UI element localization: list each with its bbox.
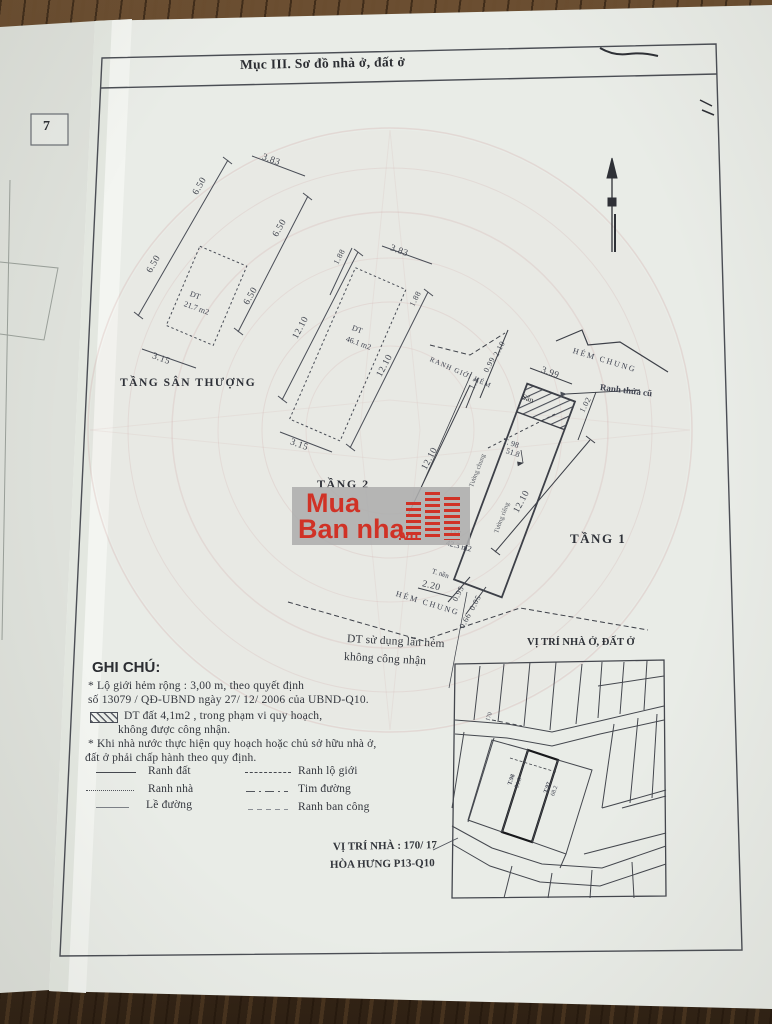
notes-title: GHI CHÚ: bbox=[92, 660, 160, 675]
scanned-page: 7 Mục III. Sơ đồ nhà ở, đất ở 3.83 6.50 … bbox=[0, 0, 772, 1024]
watermark-text-1: Mua bbox=[306, 490, 360, 517]
legend-label-ranh-ban-cong: Ranh ban công bbox=[298, 802, 370, 814]
note-line-6: đất ở phải chấp hành theo quy định. bbox=[85, 753, 257, 765]
legend-solid-line bbox=[96, 772, 136, 773]
legend-label-le-duong: Lề đường bbox=[146, 800, 192, 812]
legend-dotted-line bbox=[86, 790, 134, 791]
address-line-1: VỊ TRÍ NHÀ : 170/ 17 bbox=[333, 840, 437, 853]
roof-name: TẦNG SÂN THƯỢNG bbox=[120, 378, 256, 390]
photo-of-document: { "header": { "title": "Mục III. Sơ đồ n… bbox=[0, 0, 772, 1024]
floor1-name: TẦNG 1 bbox=[570, 532, 626, 545]
legend-thin-line bbox=[96, 807, 129, 808]
note-line-4: không được công nhận. bbox=[118, 725, 230, 737]
legend-label-ranh-lo-gioi: Ranh lộ giới bbox=[298, 766, 358, 778]
note-line-2: số 13079 / QĐ-UBND ngày 27/ 12/ 2006 của… bbox=[88, 695, 369, 707]
watermark-text-2: Ban nha bbox=[298, 516, 405, 543]
legend-balcony-line bbox=[248, 809, 288, 810]
legend-dashdot-line bbox=[246, 791, 288, 792]
address-line-2: HÒA HƯNG P13-Q10 bbox=[330, 858, 435, 871]
note-line-5: * Khi nhà nước thực hiện quy hoạch hoặc … bbox=[88, 739, 377, 751]
hatch-legend-swatch bbox=[90, 712, 118, 723]
page-title: Mục III. Sơ đồ nhà ở, đất ở bbox=[240, 55, 405, 71]
legend-label-ranh-nha: Ranh nhà bbox=[148, 784, 193, 796]
note-line-1: * Lộ giới hẻm rộng : 3,00 m, theo quyết … bbox=[88, 681, 304, 693]
legend-label-tim-duong: Tim đường bbox=[298, 784, 351, 796]
legend-label-ranh-dat: Ranh đất bbox=[148, 766, 191, 778]
page-tab-number: 7 bbox=[43, 120, 50, 134]
legend-dashed-line bbox=[245, 772, 291, 773]
map-title: VỊ TRÍ NHÀ Ở, ĐẤT Ở bbox=[527, 638, 635, 649]
note-line-3: DT đất 4,1m2 , trong phạm vi quy hoạch, bbox=[124, 711, 322, 723]
